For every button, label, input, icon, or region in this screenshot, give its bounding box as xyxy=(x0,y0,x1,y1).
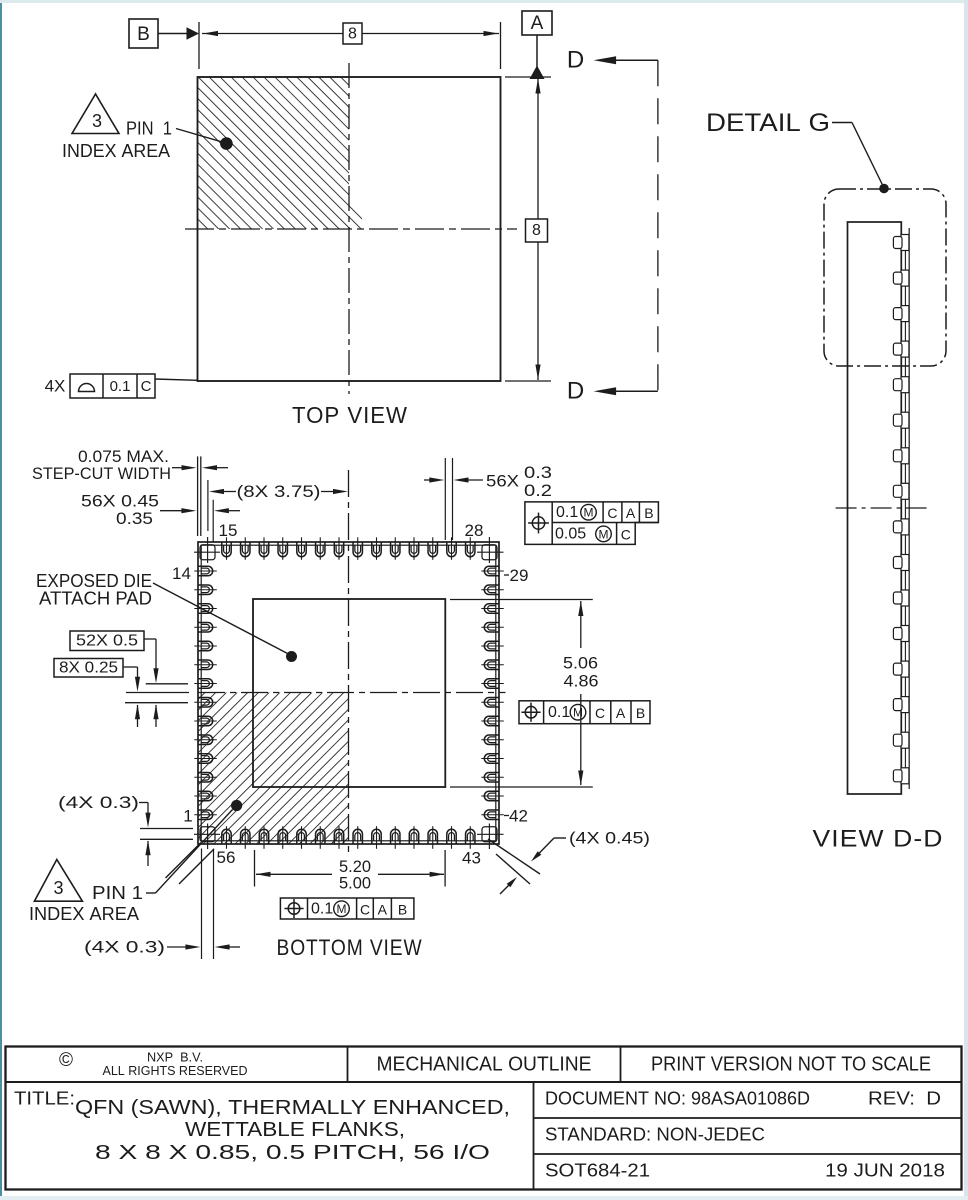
svg-text:0.1: 0.1 xyxy=(548,704,570,721)
svg-text:29: 29 xyxy=(510,566,529,585)
svg-text:C: C xyxy=(141,378,152,395)
svg-text:MECHANICAL OUTLINE: MECHANICAL OUTLINE xyxy=(377,1054,592,1076)
svg-text:(8X 3.75): (8X 3.75) xyxy=(237,482,321,501)
svg-text:C: C xyxy=(595,705,605,721)
svg-text:PIN 1: PIN 1 xyxy=(92,883,143,903)
svg-text:5.00: 5.00 xyxy=(339,873,371,892)
svg-text:A: A xyxy=(378,902,388,918)
svg-text:C: C xyxy=(360,902,370,918)
svg-text:3: 3 xyxy=(92,111,102,131)
svg-text:56X: 56X xyxy=(486,472,519,491)
svg-text:B: B xyxy=(644,505,653,521)
svg-text:M: M xyxy=(599,527,609,541)
svg-text:3: 3 xyxy=(53,878,63,898)
svg-text:52X 0.5: 52X 0.5 xyxy=(76,633,138,650)
svg-text:TOP VIEW: TOP VIEW xyxy=(292,402,408,428)
svg-text:C: C xyxy=(607,505,617,521)
svg-text:REV: D: REV: D xyxy=(868,1089,941,1109)
svg-text:43: 43 xyxy=(462,849,481,868)
svg-text:C: C xyxy=(621,527,631,543)
svg-text:A: A xyxy=(531,13,544,34)
svg-text:0.05: 0.05 xyxy=(555,526,586,543)
svg-text:A: A xyxy=(616,705,626,721)
svg-text:©: © xyxy=(59,1050,73,1071)
svg-text:BOTTOM VIEW: BOTTOM VIEW xyxy=(277,935,423,960)
svg-text:(4X 0.3): (4X 0.3) xyxy=(84,938,165,957)
svg-text:STANDARD: NON-JEDEC: STANDARD: NON-JEDEC xyxy=(545,1125,765,1145)
svg-text:INDEX AREA: INDEX AREA xyxy=(62,141,170,161)
svg-text:1: 1 xyxy=(183,807,192,826)
svg-text:8: 8 xyxy=(348,26,357,43)
svg-text:4X: 4X xyxy=(45,377,66,396)
svg-text:15: 15 xyxy=(219,521,238,540)
svg-text:VIEW D-D: VIEW D-D xyxy=(813,826,944,853)
svg-text:28: 28 xyxy=(465,521,484,540)
svg-text:5.06: 5.06 xyxy=(563,654,598,673)
svg-text:B: B xyxy=(137,24,150,45)
svg-text:STEP-CUT WIDTH: STEP-CUT WIDTH xyxy=(32,464,171,483)
svg-text:14: 14 xyxy=(172,564,191,583)
svg-text:ATTACH PAD: ATTACH PAD xyxy=(39,589,152,609)
svg-text:8 X 8 X 0.85, 0.5 PITCH, 56 I/: 8 X 8 X 0.85, 0.5 PITCH, 56 I/O xyxy=(95,1142,490,1164)
svg-text:PRINT VERSION NOT TO SCALE: PRINT VERSION NOT TO SCALE xyxy=(651,1054,931,1076)
svg-text:D: D xyxy=(567,378,584,405)
svg-text:(4X 0.3): (4X 0.3) xyxy=(58,793,139,812)
svg-text:0.1: 0.1 xyxy=(110,378,131,395)
svg-text:B: B xyxy=(636,705,645,721)
svg-text:M: M xyxy=(573,706,583,720)
svg-text:M: M xyxy=(337,902,347,916)
svg-text:DETAIL G: DETAIL G xyxy=(706,109,830,137)
svg-text:ALL RIGHTS RESERVED: ALL RIGHTS RESERVED xyxy=(103,1063,248,1078)
svg-text:0.3: 0.3 xyxy=(524,463,552,482)
svg-text:42: 42 xyxy=(509,807,528,826)
svg-text:19 JUN 2018: 19 JUN 2018 xyxy=(825,1161,945,1181)
svg-text:0.1: 0.1 xyxy=(311,901,333,918)
svg-text:8X 0.25: 8X 0.25 xyxy=(59,660,118,677)
svg-text:M: M xyxy=(584,506,594,520)
svg-text:INDEX AREA: INDEX AREA xyxy=(29,904,139,924)
svg-text:0.35: 0.35 xyxy=(116,509,153,528)
svg-text:WETTABLE FLANKS,: WETTABLE FLANKS, xyxy=(185,1119,405,1141)
svg-text:D: D xyxy=(567,47,584,74)
svg-text:DOCUMENT NO: 98ASA01086D: DOCUMENT NO: 98ASA01086D xyxy=(545,1089,810,1109)
svg-text:56: 56 xyxy=(217,848,236,867)
svg-text:TITLE:: TITLE: xyxy=(14,1089,75,1109)
svg-text:SOT684-21: SOT684-21 xyxy=(545,1161,650,1181)
svg-text:QFN (SAWN), THERMALLY ENHANCED: QFN (SAWN), THERMALLY ENHANCED, xyxy=(75,1097,510,1119)
svg-text:A: A xyxy=(626,505,636,521)
svg-text:(4X 0.45): (4X 0.45) xyxy=(569,829,650,848)
svg-text:56X 0.45: 56X 0.45 xyxy=(81,492,159,511)
svg-text:0.2: 0.2 xyxy=(524,481,552,500)
svg-text:4.86: 4.86 xyxy=(564,672,599,691)
svg-text:B: B xyxy=(398,902,407,918)
svg-text:8: 8 xyxy=(532,222,541,239)
svg-text:PIN 1: PIN 1 xyxy=(126,119,172,139)
svg-text:0.1: 0.1 xyxy=(556,504,578,521)
